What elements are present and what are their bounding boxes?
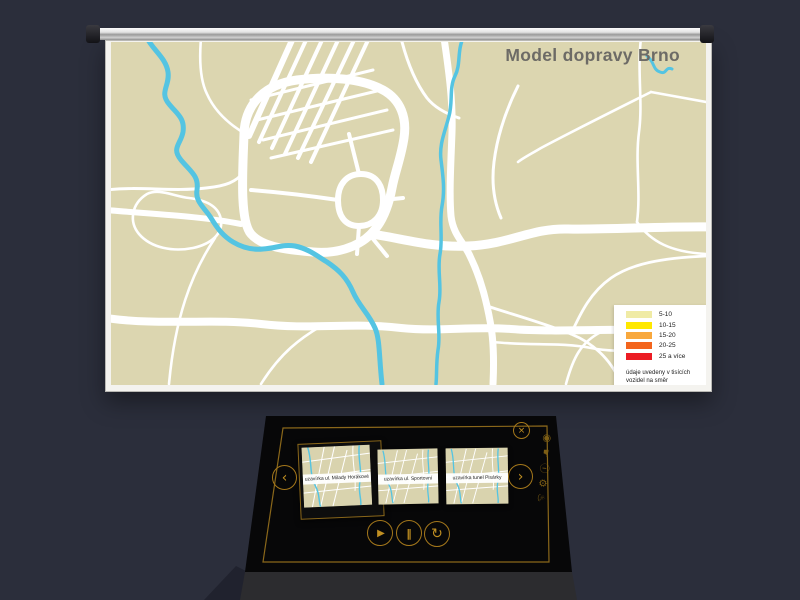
- prev-button[interactable]: ‹: [272, 465, 297, 490]
- info-icon: ⓘ: [536, 460, 549, 475]
- legend-row: 15-20: [614, 331, 706, 340]
- legend-swatch: [626, 332, 652, 339]
- legend-label: 15-20: [659, 332, 676, 339]
- lamp-icon: ♨: [533, 490, 546, 505]
- legend-swatch: [626, 311, 652, 318]
- traffic-legend: 5-10 10-15 15-20 20-25 25 a více údaje u…: [614, 305, 706, 385]
- thumbnail-milady-horakove[interactable]: uzavírka ul. Milady Horákové: [302, 445, 373, 508]
- roller-bar-endcap-right: [700, 25, 714, 43]
- projection-screen: Model dopravy Brno 5-10 10-15 15-20 20-2…: [105, 40, 712, 392]
- close-button[interactable]: ×: [513, 422, 530, 439]
- screen-roller-bar: [92, 28, 708, 40]
- thumbnail-caption: uzavírka tunel Pisárky: [446, 473, 508, 484]
- legend-label: 25 a více: [659, 353, 685, 360]
- hand-pointer-icon: ☛: [538, 445, 551, 460]
- chevron-right-icon: ›: [518, 469, 524, 485]
- legend-row: 20-25: [614, 341, 706, 350]
- map-title: Model dopravy Brno: [505, 45, 680, 66]
- play-button[interactable]: ▶: [367, 520, 393, 546]
- legend-note: údaje uvedeny v tisících vozidel na směr: [626, 369, 704, 385]
- legend-swatch: [626, 322, 652, 329]
- replay-button[interactable]: ↻: [424, 521, 450, 547]
- thumbnail-selected-frame[interactable]: uzavírka ul. Milady Horákové: [297, 440, 384, 520]
- legend-swatch: [626, 342, 652, 349]
- pause-icon: ‖: [406, 527, 412, 540]
- legend-row: 10-15: [614, 320, 706, 329]
- legend-swatch: [626, 353, 652, 360]
- legend-row: 5-10: [614, 310, 706, 319]
- next-button[interactable]: ›: [508, 464, 533, 489]
- thumbnail-sportovni[interactable]: uzavírka ul. Sportovní: [377, 448, 438, 504]
- brno-traffic-map: Model dopravy Brno 5-10 10-15 15-20 20-2…: [111, 42, 706, 385]
- legend-label: 20-25: [659, 342, 676, 349]
- legend-row: 25 a více: [614, 352, 706, 361]
- thumbnail-tunel-pisarky[interactable]: uzavírka tunel Pisárky: [446, 448, 509, 505]
- close-icon: ×: [518, 426, 526, 436]
- console-front-face: [240, 572, 577, 600]
- dial-icon: ◉: [539, 431, 552, 446]
- play-icon: ▶: [377, 528, 385, 539]
- legend-label: 10-15: [659, 322, 676, 329]
- chevron-left-icon: ‹: [282, 470, 288, 486]
- roller-bar-endcap-left: [86, 25, 100, 43]
- thumbnail-caption: uzavírka ul. Sportovní: [378, 473, 438, 484]
- replay-icon: ↻: [431, 526, 443, 542]
- legend-label: 5-10: [659, 311, 672, 318]
- gear-icon: ⚙: [535, 475, 548, 490]
- pause-button[interactable]: ‖: [396, 520, 422, 546]
